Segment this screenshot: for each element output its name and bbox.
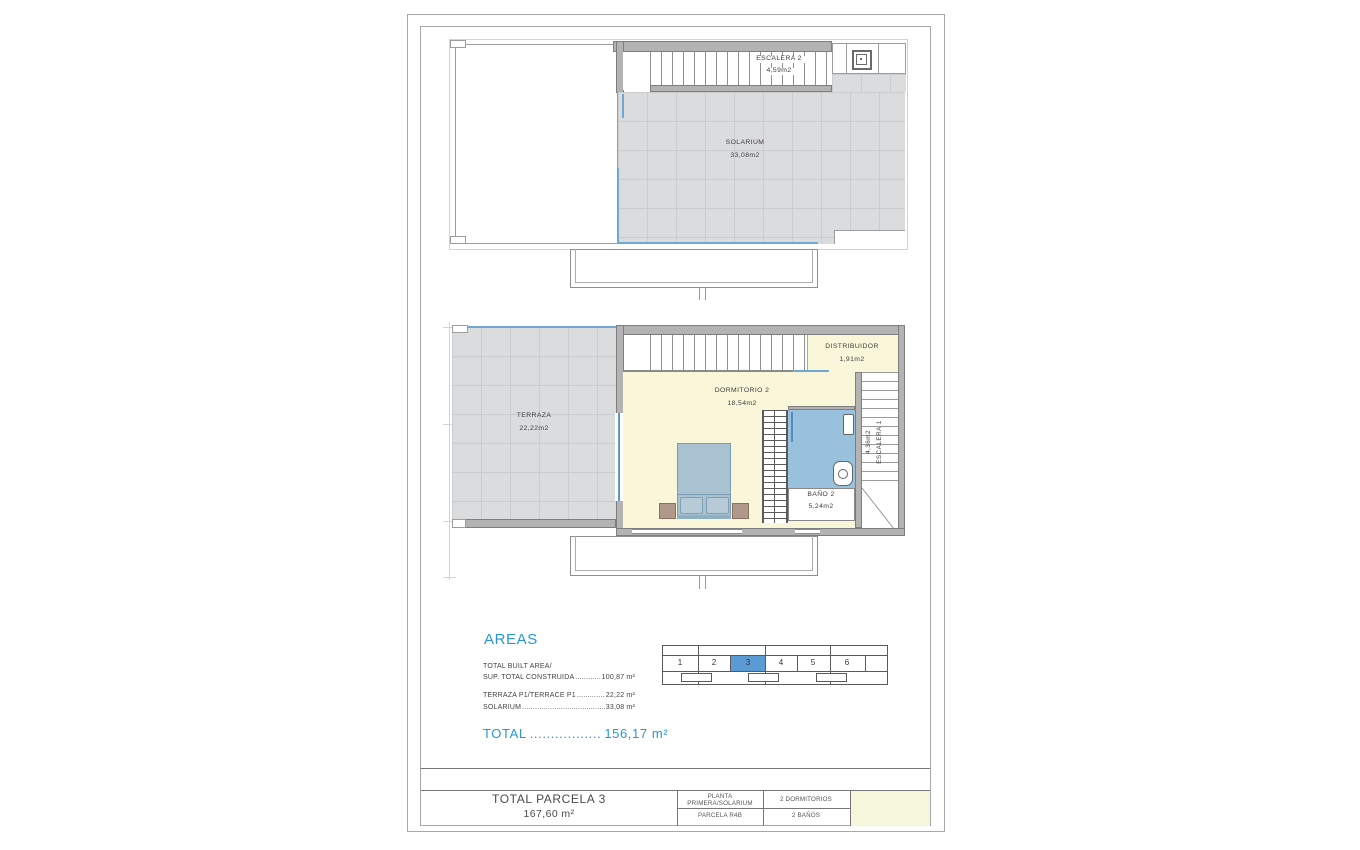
wardrobe [762,410,788,523]
distribuidor-area [808,335,898,372]
areas-row-terraza: TERRAZA P1/TERRACE P1 ..................… [483,690,635,701]
keyplan-unit-3: 3 [746,659,750,667]
wall-segment [613,41,832,52]
balcony-outline-inner [575,536,813,571]
window-opening [795,529,820,534]
areas-rows: TOTAL BUILT AREA/ SUP. TOTAL CONSTRUIDA … [483,661,635,713]
built-value: 100,87 m² [602,672,635,683]
keyplan-unit-2: 2 [712,659,716,667]
skylight-fixture-dot [860,58,862,60]
section-tick-mark [699,576,706,589]
keyplan-porch-box [748,673,779,682]
leader-dots: ...................................... [575,672,600,683]
areas-total-row: TOTAL ................. 156,17 m² [483,726,668,741]
bedrooms-count: 2 DORMITORIOS [780,797,832,803]
wall-corner-notch [450,40,466,48]
bed-headboard [677,515,731,519]
wall-segment [452,519,616,528]
areas-row-built-2: SUP. TOTAL CONSTRUIDA ..................… [483,672,635,683]
solarium-tiled-area [618,92,905,244]
titleblock-line [763,808,850,809]
strip-divider-line [878,44,879,73]
escalera1-label: ESCALERA 1 [875,420,886,464]
keyplan-porch-box [816,673,847,682]
keyplan-unit-6: 6 [845,659,849,667]
wardrobe-rail-line [774,410,775,523]
terraza-p1-value: 22,22 m² [606,690,635,701]
wall-segment [855,372,862,528]
areas-panel-title: AREAS [484,631,538,648]
railing-line [617,168,619,244]
bano-area-value: 5,24m2 [808,504,833,511]
areas-row-solarium: SOLARIUM ...............................… [483,702,635,713]
leader-dots: ........................................… [522,702,605,713]
escalera2-area-value: 4,59m2 [763,68,794,75]
keyplan-line [765,656,766,671]
built-label-2: SUP. TOTAL CONSTRUIDA [483,672,574,683]
balcony-outline-inner [575,249,813,283]
stair-landing [624,335,650,371]
escalera2-label: ESCALERA 2 [753,56,805,63]
keyplan-line [698,656,699,671]
bathrooms-count: 2 BAÑOS [792,813,820,819]
bed-fold-line [677,494,731,495]
drawing-sheet-page: ESCALERA 2 4,59m2 SOLARIUM 33,08m2 TERRA… [0,0,1360,850]
solarium-row-value: 33,08 m² [606,702,635,713]
wall-corner-notch [450,236,466,244]
door-leaf [791,412,793,442]
solarium-row-label: SOLARIUM [483,702,521,713]
dormitorio-label: DORMITORIO 2 [715,388,770,395]
titleblock-line [677,808,763,809]
railing-line [618,242,818,244]
wall-corner-notch [452,519,466,528]
sink-fixture [843,414,854,435]
pillow [706,497,729,514]
titleblock-line [421,768,930,769]
boundary-tick [443,577,456,578]
toilet-bowl [838,469,848,479]
toilet-fixture [833,461,853,486]
solarium-area-value: 33,08m2 [730,153,759,160]
distribuidor-area-value: 1,91m2 [839,357,864,364]
keyplan-unit-4: 4 [779,659,783,667]
stair-treads [650,335,807,371]
titleblock-logo-cell [851,791,930,826]
parcel-title: TOTAL PARCELA 3 [492,793,606,805]
strip-divider-line [846,44,847,73]
nightstand [732,503,749,519]
keyplan-unit-5: 5 [811,659,815,667]
total-value: 156,17 m² [604,726,668,741]
first-plan-boundary-line [449,322,450,580]
wall-segment [898,325,905,536]
keyplan-porch-box [681,673,712,682]
bano-label: BAÑO 2 [807,492,834,499]
wall-corner-notch [452,325,468,333]
total-label: TOTAL [483,726,527,741]
terraza-p1-label: TERRAZA P1/TERRACE P1 [483,690,576,701]
leader-dots: ...................................... [577,690,605,701]
solarium-label: SOLARIUM [726,140,765,147]
areas-row-built-1: TOTAL BUILT AREA/ [483,661,635,672]
keyplan-line [663,655,887,656]
keyplan-line [663,671,887,672]
keyplan-line [830,656,831,671]
planta-label-line2: PRIMERA/SOLARIUM [687,801,752,807]
parcela-ref: PARCELA R4B [698,813,742,819]
escalera1-label-group: 4,36m2 ESCALERA 1 [862,407,888,477]
section-tick-mark [699,288,706,300]
keyplan-unit-1: 1 [678,659,682,667]
parcel-area-value: 167,60 m² [524,809,575,820]
leader-dots: ................. [530,726,602,741]
built-label-1: TOTAL BUILT AREA/ [483,661,552,672]
wall-segment [616,325,905,335]
keyplan-line [865,656,866,671]
window-glass-line [618,413,620,501]
railing-line [622,94,624,118]
nightstand [659,503,676,519]
distribuidor-label: DISTRIBUIDOR [825,344,879,351]
escalera1-area-value: 4,36m2 [864,430,875,454]
terraza-label: TERRAZA [517,413,552,420]
pillow [680,497,703,514]
solarium-tiled-area [832,74,906,92]
wall-segment [650,85,832,92]
railing-line [468,326,616,328]
window-opening [632,529,742,534]
terraza-area-value: 22,22m2 [519,426,548,433]
dormitorio-area-value: 18,54m2 [727,401,756,408]
top-plan-open-room [455,44,618,244]
solarium-edge-step [834,230,905,244]
keyplan-line [730,656,731,671]
keyplan-line [797,656,798,671]
